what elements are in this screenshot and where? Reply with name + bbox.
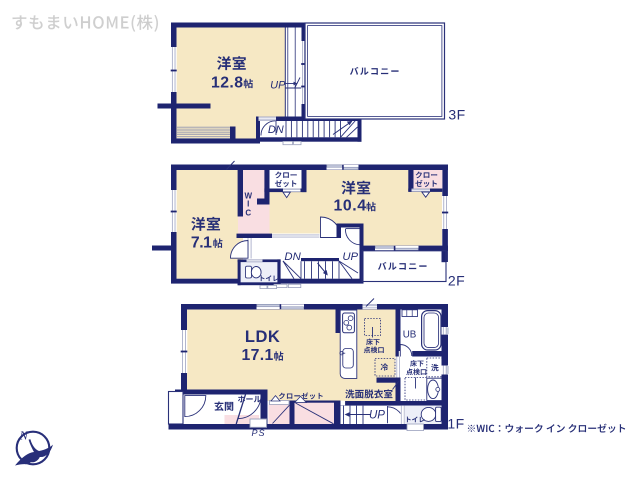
svg-text:12.8: 12.8 (211, 75, 243, 92)
svg-text:LDK: LDK (245, 328, 280, 346)
svg-text:3F: 3F (448, 107, 465, 123)
svg-text:17.1: 17.1 (242, 347, 274, 364)
svg-text:1F: 1F (447, 416, 464, 432)
svg-text:7.1: 7.1 (191, 234, 212, 251)
svg-text:DN: DN (268, 124, 284, 136)
svg-text:I: I (247, 200, 249, 209)
svg-text:UP: UP (369, 409, 385, 421)
svg-text:PS: PS (251, 428, 265, 438)
svg-text:UB: UB (403, 330, 417, 341)
svg-text:DN: DN (284, 251, 301, 263)
svg-text:UP: UP (270, 79, 286, 91)
svg-text:2F: 2F (448, 273, 465, 289)
svg-text:C: C (245, 209, 251, 218)
svg-text:UP: UP (342, 251, 358, 263)
svg-text:10.4: 10.4 (334, 198, 367, 215)
